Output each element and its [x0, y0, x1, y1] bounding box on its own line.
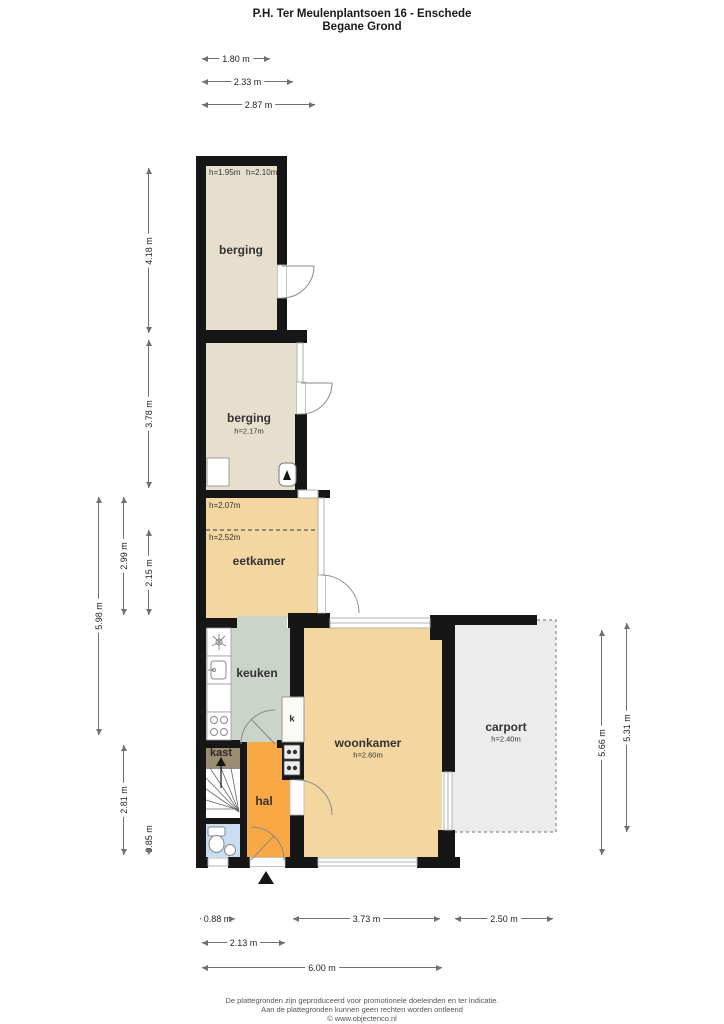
entrance-arrow-icon [258, 871, 274, 884]
berging1-door-panel [278, 265, 287, 298]
wall-berging1-berging2 [196, 330, 307, 343]
floor-plan-drawing [0, 0, 724, 1024]
hand-basin-icon [225, 845, 236, 856]
floorplan-page: { "title": { "line1": "P.H. Ter Meulenpl… [0, 0, 724, 1024]
wall-woonkamer-top-left [288, 613, 330, 628]
hal-woonkamer-door-panel [290, 780, 304, 815]
berging1-height-right: h=2.10m [246, 168, 277, 177]
dim-left-215: 2.15 m [148, 530, 149, 615]
footer-disclaimer-line2: Aan de plattegronden kunnen geen rechten… [0, 1005, 724, 1014]
room-label-berging1: berging [219, 243, 263, 257]
dim-left-378: 3.78 m [148, 340, 149, 488]
eetkamer-door-swing [321, 575, 359, 613]
wall-berging2-right-lower [295, 414, 307, 490]
dim-top-233: 2.33 m [202, 81, 293, 82]
wall-bottom-2 [228, 857, 250, 868]
keuken-passage-floor [237, 616, 287, 630]
boiler-icon [279, 463, 296, 486]
dim-right-566: 5.66 m [601, 630, 602, 855]
wall-berging1-top [196, 156, 287, 166]
wall-hal-stairs [240, 742, 247, 857]
wall-bottom-3 [285, 857, 318, 868]
eetkamer-height-top: h=2.07m [209, 501, 240, 510]
dim-left-598: 5.98 m [98, 497, 99, 735]
dim-top-287: 2.87 m [202, 104, 315, 105]
berging2-door-panel [297, 382, 306, 414]
wall-woonkamer-right [442, 628, 455, 772]
berging2-height: h=2.17m [234, 427, 263, 436]
wall-woonkamer-left-upper [290, 628, 304, 697]
room-label-hal: hal [255, 794, 272, 808]
woonkamer-height: h=2.60m [353, 751, 382, 760]
wall-woonkamer-right-bottom-corner [438, 830, 455, 857]
wall-stairs-toilet [196, 818, 240, 824]
wall-keuken-hal-stub [277, 740, 282, 748]
dim-right-531: 5.31 m [626, 623, 627, 832]
berging1-height-left: h=1.95m [209, 168, 240, 177]
wall-woonkamer-left-lower [290, 815, 304, 857]
dim-bottom-373: 3.73 m [293, 918, 440, 919]
room-label-k-closet: k [289, 714, 294, 725]
appliance-icon [207, 458, 229, 486]
footer-disclaimer-line1: De plattegronden zijn geproduceerd voor … [0, 996, 724, 1005]
dim-bottom-088: 0.88 m [200, 918, 235, 919]
dim-left-418: 4.18 m [148, 168, 149, 333]
dim-left-281: 2.81 m [123, 745, 124, 855]
carport-height: h=2.40m [491, 735, 520, 744]
footer-copyright: © www.objectenco.nl [0, 1014, 724, 1023]
dim-left-085: 0.85 m [148, 822, 149, 855]
room-label-carport: carport [485, 720, 526, 734]
toilet-icon [208, 827, 225, 853]
dim-bottom-250: 2.50 m [455, 918, 553, 919]
front-door-panel [250, 858, 285, 867]
window-berging2-right [297, 343, 303, 382]
room-label-woonkamer: woonkamer [335, 736, 402, 750]
wall-berging2-eetkamer [196, 490, 298, 498]
wall-bottom-1 [196, 857, 208, 868]
room-label-keuken: keuken [236, 666, 277, 680]
wall-bottom-4 [417, 857, 460, 868]
kitchen-counter [207, 628, 231, 740]
window-eetkamer-top [298, 490, 318, 498]
wall-eetkamer-keuken [196, 618, 237, 628]
room-label-kast: kast [210, 747, 232, 759]
wall-eetkamer-top-right [318, 490, 330, 498]
eetkamer-height-mid: h=2.52m [209, 533, 240, 542]
window-toilet-bottom [208, 858, 228, 866]
dim-left-299: 2.99 m [123, 497, 124, 615]
dim-bottom-213: 2.13 m [202, 942, 285, 943]
dim-top-180: 1.80 m [202, 58, 270, 59]
wall-carport-top [455, 615, 537, 625]
room-label-berging2: berging [227, 411, 271, 425]
wall-berging1-right-lower [277, 298, 287, 330]
room-label-eetkamer: eetkamer [233, 554, 286, 568]
dim-bottom-600: 6.00 m [202, 967, 442, 968]
wall-berging1-right-upper [277, 166, 287, 265]
eetkamer-door-panel [318, 575, 326, 613]
wall-left-outer [196, 156, 206, 868]
window-eetkamer-right [318, 498, 324, 575]
